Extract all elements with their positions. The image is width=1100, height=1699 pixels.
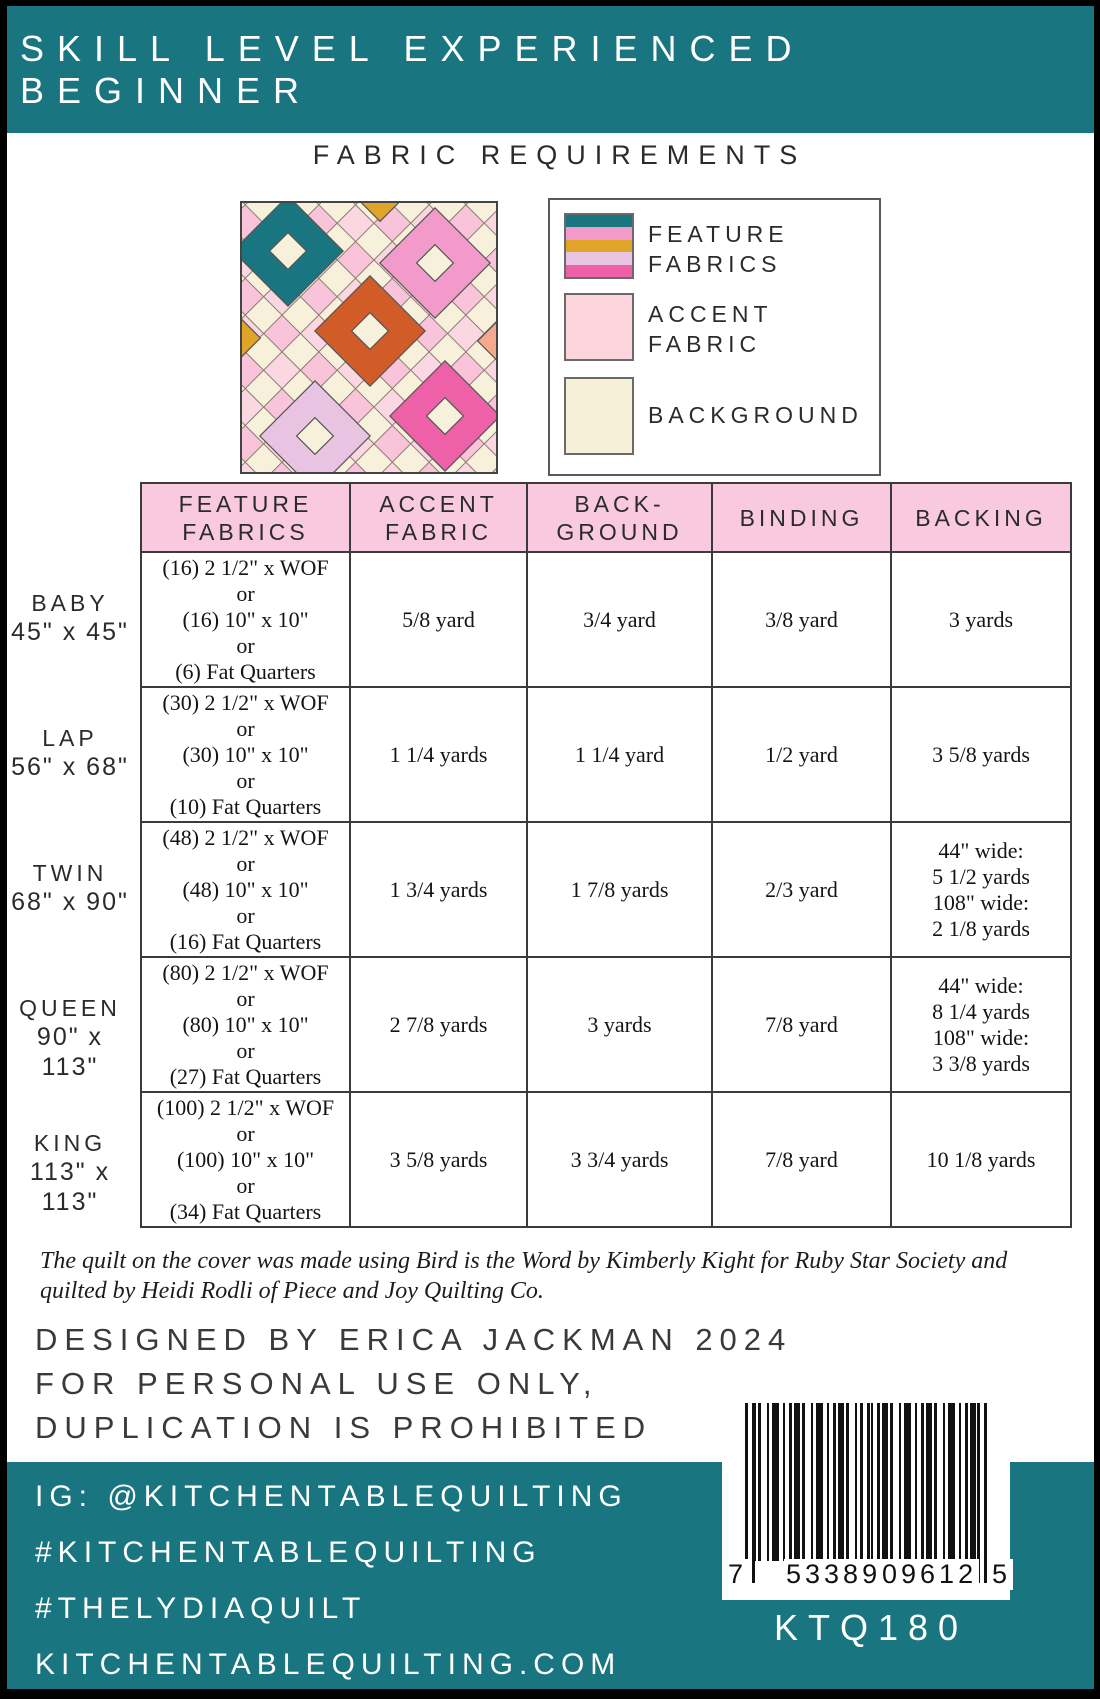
credits-block: DESIGNED BY ERICA JACKMAN 2024 FOR PERSO… xyxy=(35,1318,792,1450)
instagram-handle: IG: @KITCHENTABLEQUILTING xyxy=(35,1480,628,1514)
stripe-dark-pink xyxy=(566,265,632,277)
header-binding: BINDING xyxy=(712,483,891,552)
feature-fabrics-label: FEATURE FABRICS xyxy=(648,219,789,279)
background-label: BACKGROUND xyxy=(648,400,863,430)
cell-lap-accent: 1 1/4 yards xyxy=(350,687,527,822)
stripe-lavender xyxy=(566,252,632,264)
cell-queen-binding: 7/8 yard xyxy=(712,957,891,1092)
row-label-king: KING 113" x 113" xyxy=(7,1129,133,1217)
background-swatch xyxy=(564,377,634,455)
cell-twin-backing: 44" wide: 5 1/2 yards 108" wide: 2 1/8 y… xyxy=(891,822,1071,957)
page-inner: SKILL LEVEL EXPERIENCED BEGINNER FABRIC … xyxy=(7,6,1094,1689)
cell-king-feature: (100) 2 1/2" x WOF or (100) 10" x 10" or… xyxy=(141,1092,350,1227)
row-label-baby: BABY 45" x 45" xyxy=(7,589,133,647)
cell-lap-backing: 3 5/8 yards xyxy=(891,687,1071,822)
cell-twin-feature: (48) 2 1/2" x WOF or (48) 10" x 10" or (… xyxy=(141,822,350,957)
barcode-digits-group1: 53389 xyxy=(784,1559,883,1590)
cell-baby-binding: 3/8 yard xyxy=(712,552,891,687)
cell-lap-feature: (30) 2 1/2" x WOF or (30) 10" x 10" or (… xyxy=(141,687,350,822)
hashtag-kitchentablequilting: #KITCHENTABLEQUILTING xyxy=(35,1536,542,1570)
cell-baby-background: 3/4 yard xyxy=(527,552,712,687)
cell-lap-background: 1 1/4 yard xyxy=(527,687,712,822)
product-code: KTQ180 xyxy=(722,1607,1010,1649)
cell-twin-accent: 1 3/4 yards xyxy=(350,822,527,957)
header-accent-fabric: ACCENT FABRIC xyxy=(350,483,527,552)
website-url: KITCHENTABLEQUILTING.COM xyxy=(35,1648,621,1682)
barcode-digit-left: 7 xyxy=(726,1559,749,1590)
barcode-digit-right: 5 xyxy=(990,1559,1013,1590)
accent-fabric-swatch xyxy=(564,293,634,361)
stripe-teal xyxy=(566,215,632,227)
cell-king-background: 3 3/4 yards xyxy=(527,1092,712,1227)
cell-king-binding: 7/8 yard xyxy=(712,1092,891,1227)
quilt-illustration xyxy=(240,201,498,474)
cell-king-backing: 10 1/8 yards xyxy=(891,1092,1071,1227)
cell-baby-feature: (16) 2 1/2" x WOF or (16) 10" x 10" or (… xyxy=(141,552,350,687)
cover-fabric-note: The quilt on the cover was made using Bi… xyxy=(40,1246,1070,1306)
fabric-requirements-title: FABRIC REQUIREMENTS xyxy=(7,140,1100,171)
barcode: 7 53389 09612 5 xyxy=(722,1395,1010,1600)
cell-queen-feature: (80) 2 1/2" x WOF or (80) 10" x 10" or (… xyxy=(141,957,350,1092)
barcode-guard-left xyxy=(745,1403,755,1583)
row-label-twin: TWIN 68" x 90" xyxy=(7,859,133,917)
fabric-legend: FEATURE FABRICS ACCENT FABRIC BACKGROUND xyxy=(548,198,881,476)
header-backing: BACKING xyxy=(891,483,1071,552)
skill-level-banner: SKILL LEVEL EXPERIENCED BEGINNER xyxy=(7,6,1094,133)
row-label-lap: LAP 56" x 68" xyxy=(7,724,133,782)
feature-fabrics-swatch xyxy=(564,213,634,279)
stripe-pink xyxy=(566,227,632,239)
stripe-gold xyxy=(566,240,632,252)
cell-baby-accent: 5/8 yard xyxy=(350,552,527,687)
fabric-requirements-table: FEATURE FABRICS ACCENT FABRIC BACK- GROU… xyxy=(140,482,1072,1228)
skill-level-text: SKILL LEVEL EXPERIENCED BEGINNER xyxy=(7,28,1094,112)
barcode-guard-right xyxy=(977,1403,987,1583)
accent-fabric-label: ACCENT FABRIC xyxy=(648,299,773,359)
pattern-back-page: SKILL LEVEL EXPERIENCED BEGINNER FABRIC … xyxy=(0,0,1100,1699)
cell-twin-background: 1 7/8 yards xyxy=(527,822,712,957)
barcode-digits-group2: 09612 xyxy=(880,1559,979,1590)
designed-by-line: DESIGNED BY ERICA JACKMAN 2024 xyxy=(35,1318,792,1362)
barcode-guard-middle xyxy=(860,1403,870,1583)
cell-queen-background: 3 yards xyxy=(527,957,712,1092)
header-feature-fabrics: FEATURE FABRICS xyxy=(141,483,350,552)
cell-lap-binding: 1/2 yard xyxy=(712,687,891,822)
personal-use-line: FOR PERSONAL USE ONLY, xyxy=(35,1362,792,1406)
cell-twin-binding: 2/3 yard xyxy=(712,822,891,957)
cell-baby-backing: 3 yards xyxy=(891,552,1071,687)
duplication-line: DUPLICATION IS PROHIBITED xyxy=(35,1406,792,1450)
cell-queen-accent: 2 7/8 yards xyxy=(350,957,527,1092)
hashtag-thelydiaquilt: #THELYDIAQUILT xyxy=(35,1592,366,1626)
header-background: BACK- GROUND xyxy=(527,483,712,552)
cell-queen-backing: 44" wide: 8 1/4 yards 108" wide: 3 3/8 y… xyxy=(891,957,1071,1092)
row-label-queen: QUEEN 90" x 113" xyxy=(7,994,133,1082)
cell-king-accent: 3 5/8 yards xyxy=(350,1092,527,1227)
